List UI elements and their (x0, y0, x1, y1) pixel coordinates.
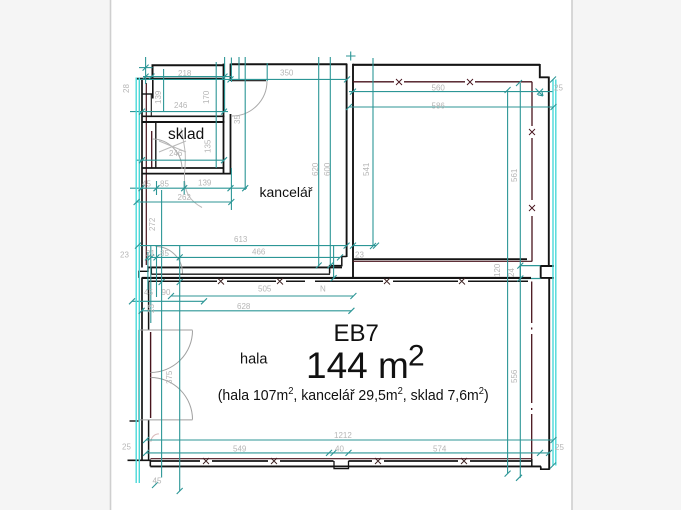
svg-text:574: 574 (433, 445, 447, 454)
svg-text:1212: 1212 (334, 431, 352, 440)
svg-text:561: 561 (510, 168, 519, 182)
svg-text:139: 139 (154, 90, 163, 104)
svg-text:sklad: sklad (168, 126, 204, 143)
svg-text:613: 613 (234, 235, 248, 244)
svg-text:350: 350 (280, 69, 294, 78)
svg-text:120: 120 (493, 263, 502, 277)
svg-text:246: 246 (169, 149, 183, 158)
svg-text:586: 586 (432, 102, 446, 111)
svg-text:28: 28 (122, 84, 131, 93)
svg-text:246: 246 (174, 101, 188, 110)
svg-text:35: 35 (233, 115, 242, 124)
svg-text:556: 556 (510, 369, 519, 383)
svg-text:600: 600 (323, 162, 332, 176)
svg-text:24: 24 (507, 268, 516, 277)
svg-text:(hala 107m2, kancelář 29,5m2,: (hala 107m2, kancelář 29,5m2, sklad 7,6m… (218, 386, 489, 404)
svg-text:135: 135 (204, 139, 213, 153)
svg-text:560: 560 (432, 84, 446, 93)
svg-text:40: 40 (335, 445, 344, 454)
svg-text:21: 21 (146, 249, 155, 258)
svg-text:262: 262 (178, 193, 192, 202)
svg-text:466: 466 (252, 248, 266, 257)
svg-text:25: 25 (554, 84, 563, 93)
svg-text:2: 2 (408, 340, 425, 373)
svg-text:45: 45 (144, 288, 153, 297)
svg-text:144 m: 144 m (306, 345, 409, 386)
svg-text:45: 45 (153, 477, 162, 486)
svg-text:23: 23 (120, 251, 129, 260)
svg-text:272: 272 (148, 217, 157, 231)
svg-text:620: 620 (311, 162, 320, 176)
svg-text:90: 90 (162, 288, 171, 297)
svg-text:N: N (320, 285, 326, 294)
svg-text:85: 85 (160, 249, 169, 258)
svg-text:kancelář: kancelář (260, 184, 313, 200)
svg-text:170: 170 (202, 90, 211, 104)
svg-text:549: 549 (233, 445, 247, 454)
svg-text:25: 25 (555, 443, 564, 452)
svg-text:628: 628 (237, 302, 251, 311)
svg-text:45: 45 (142, 180, 151, 189)
svg-text:85: 85 (160, 180, 169, 189)
svg-text:218: 218 (178, 69, 192, 78)
svg-text:23: 23 (147, 304, 156, 313)
svg-text:139: 139 (198, 179, 212, 188)
svg-text:hala: hala (240, 352, 268, 368)
svg-text:541: 541 (362, 162, 371, 176)
svg-text:23: 23 (355, 251, 364, 260)
svg-text:25: 25 (122, 443, 131, 452)
svg-text:505: 505 (258, 285, 272, 294)
svg-text:375: 375 (165, 370, 174, 384)
svg-text:EB7: EB7 (334, 320, 379, 347)
